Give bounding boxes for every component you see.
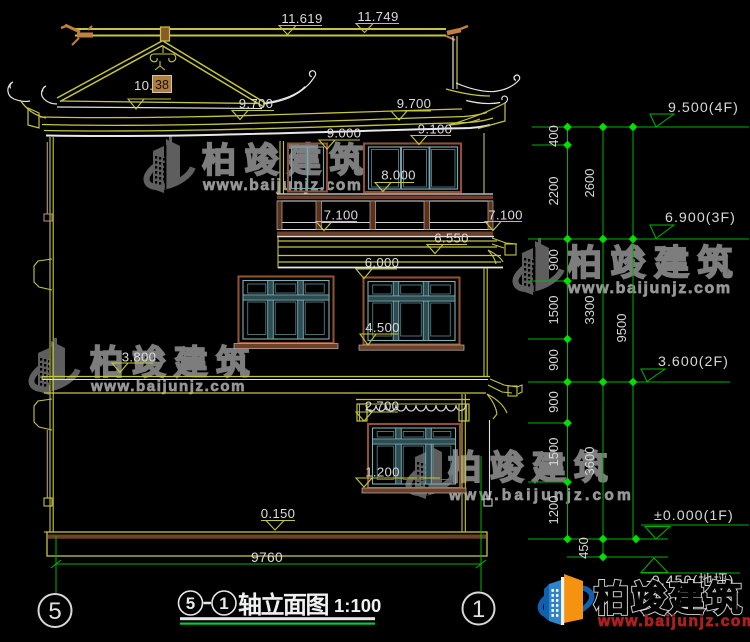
svg-text:9760: 9760	[251, 550, 283, 565]
svg-text:400: 400	[546, 125, 561, 147]
svg-text:9.500(4F): 9.500(4F)	[668, 100, 739, 116]
svg-text:1: 1	[219, 594, 228, 613]
svg-text:7.100: 7.100	[488, 208, 523, 223]
svg-text:1500: 1500	[546, 296, 561, 325]
svg-text:38: 38	[155, 78, 169, 92]
svg-text:9.700: 9.700	[239, 96, 274, 111]
svg-text:1:100: 1:100	[334, 595, 381, 616]
svg-text:3300: 3300	[582, 296, 597, 325]
svg-text:3.600(2F): 3.600(2F)	[658, 354, 729, 370]
svg-text:900: 900	[546, 349, 561, 371]
svg-text:9.000: 9.000	[327, 126, 362, 141]
svg-text:3600: 3600	[582, 447, 597, 476]
svg-text:6.000: 6.000	[365, 255, 400, 270]
svg-text:2200: 2200	[546, 177, 561, 206]
svg-text:0.150: 0.150	[261, 506, 296, 521]
svg-text:7.100: 7.100	[324, 208, 359, 223]
svg-text:6.550: 6.550	[434, 231, 469, 246]
svg-text:3.800: 3.800	[122, 350, 157, 365]
svg-text:轴立面图: 轴立面图	[238, 591, 328, 619]
svg-text:9.700: 9.700	[397, 96, 432, 111]
svg-text:450: 450	[576, 537, 591, 559]
svg-text:11.749: 11.749	[357, 9, 398, 24]
svg-text:900: 900	[546, 249, 561, 271]
svg-text:±0.000(1F): ±0.000(1F)	[654, 508, 734, 524]
svg-text:8.000: 8.000	[381, 168, 416, 183]
svg-text:900: 900	[546, 391, 561, 413]
svg-text:4.500: 4.500	[365, 320, 400, 335]
svg-text:1500: 1500	[546, 438, 561, 467]
svg-text:5: 5	[186, 594, 195, 613]
svg-text:9.100: 9.100	[418, 122, 453, 137]
svg-text:9500: 9500	[614, 314, 629, 343]
svg-text:www.baijunjz.com: www.baijunjz.com	[597, 613, 750, 630]
svg-text:2.700: 2.700	[365, 399, 400, 414]
svg-text:www.baijunjz.com: www.baijunjz.com	[448, 487, 634, 504]
svg-text:1.200: 1.200	[365, 465, 400, 480]
svg-text:www.baijunjz.com: www.baijunjz.com	[202, 177, 362, 194]
svg-text:1200: 1200	[546, 496, 561, 525]
svg-text:11.619: 11.619	[281, 11, 322, 26]
svg-text:6.900(3F): 6.900(3F)	[665, 210, 736, 226]
svg-text:1: 1	[472, 596, 485, 623]
svg-text:www.baijunjz.com: www.baijunjz.com	[567, 280, 732, 297]
svg-text:5: 5	[48, 598, 61, 625]
svg-text:2600: 2600	[582, 169, 597, 198]
svg-text:柏竣建筑: 柏竣建筑	[567, 243, 741, 283]
